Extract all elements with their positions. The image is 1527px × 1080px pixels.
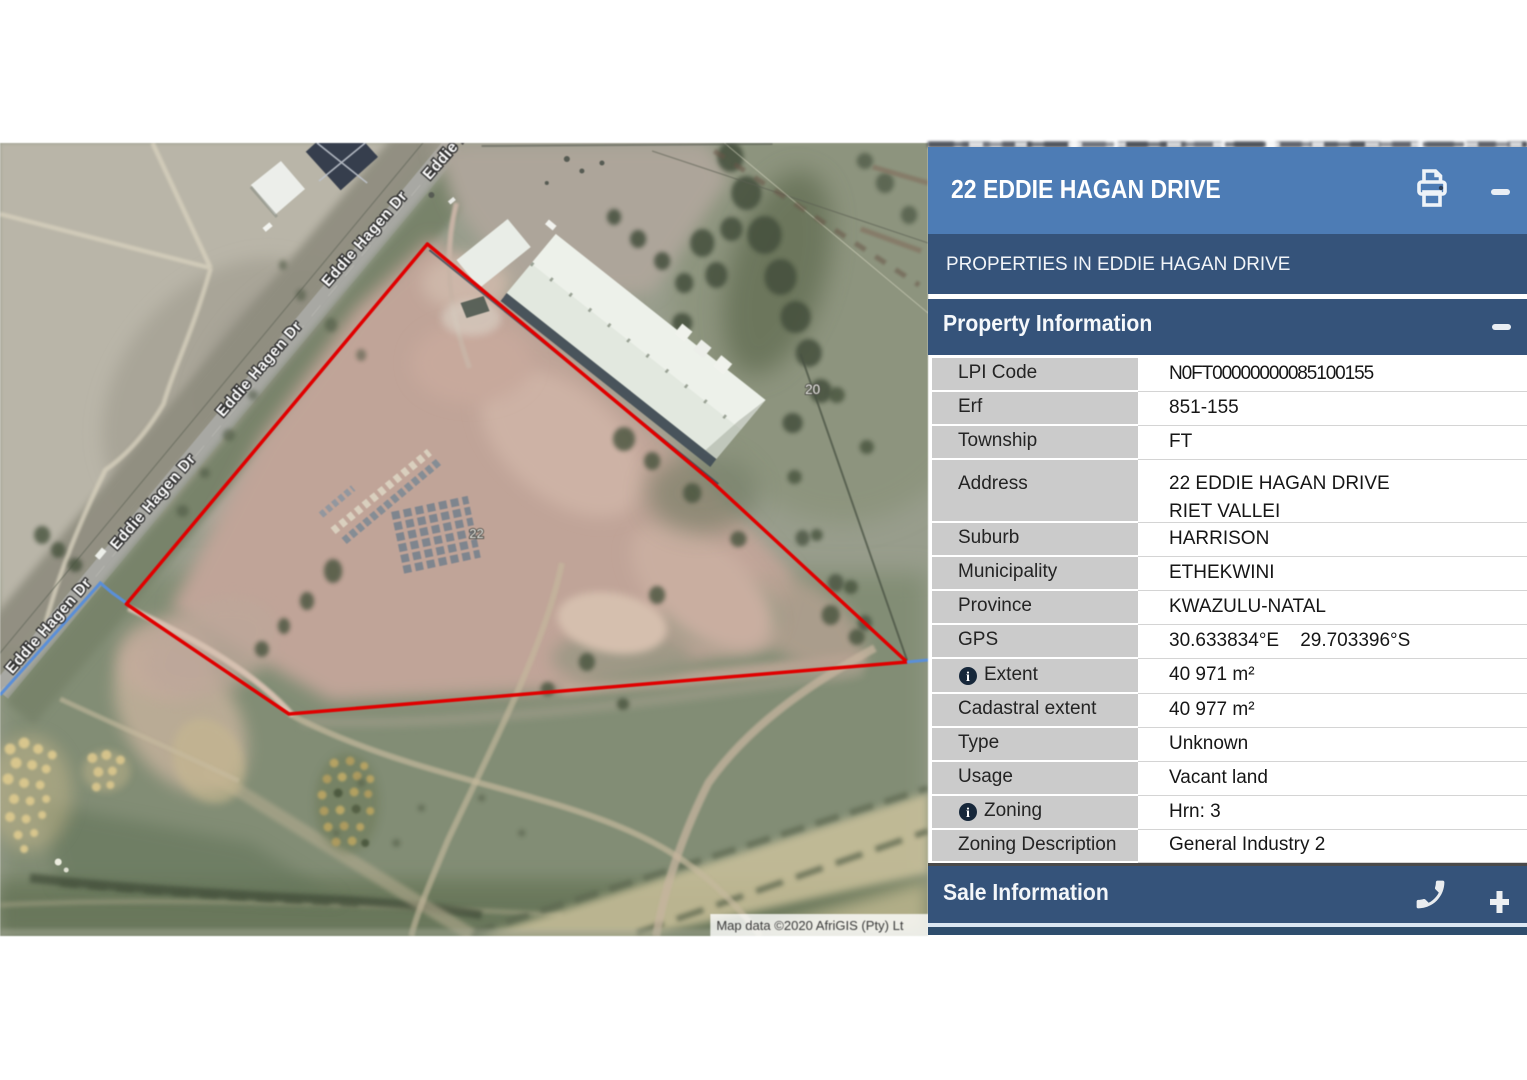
svg-text:22: 22 xyxy=(469,526,484,541)
svg-text:i: i xyxy=(966,670,970,685)
svg-text:Map data ©2020 AfriGIS (Pty) L: Map data ©2020 AfriGIS (Pty) Lt xyxy=(716,918,904,933)
svg-text:20: 20 xyxy=(805,382,820,397)
svg-text:i: i xyxy=(966,806,970,821)
